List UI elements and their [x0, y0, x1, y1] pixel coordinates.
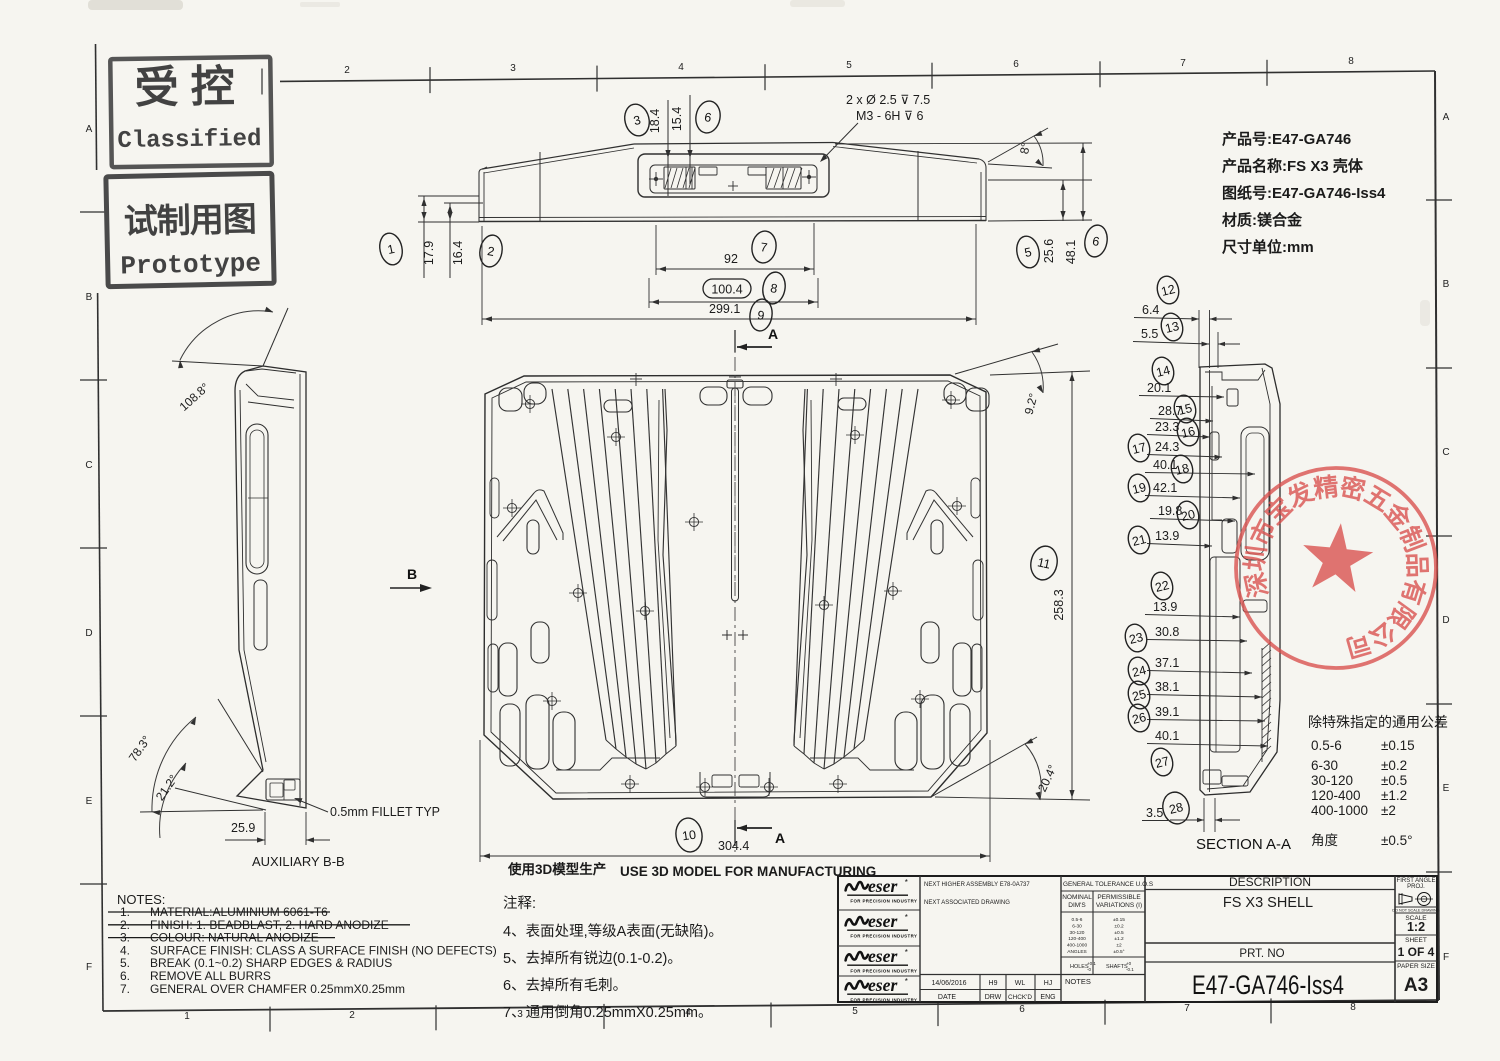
svg-text:304.4: 304.4: [718, 839, 749, 853]
svg-text:6.4: 6.4: [1142, 303, 1159, 317]
svg-text:9.2°: 9.2°: [1022, 392, 1041, 417]
svg-text:±2: ±2: [1381, 803, 1396, 818]
svg-text:258.3: 258.3: [1052, 589, 1066, 620]
svg-text:42.1: 42.1: [1153, 481, 1177, 495]
svg-text:8: 8: [769, 281, 778, 296]
svg-text:6-30: 6-30: [1072, 923, 1082, 929]
svg-text:2: 2: [486, 244, 495, 259]
svg-text:E: E: [1443, 783, 1450, 794]
svg-text:13.9: 13.9: [1153, 600, 1177, 614]
svg-text:30.8: 30.8: [1155, 625, 1179, 639]
svg-text:15.4: 15.4: [670, 107, 684, 131]
svg-text:E47-GA746-Iss4: E47-GA746-Iss4: [1192, 970, 1344, 1000]
svg-text:DO NOT SCALE DRAWING: DO NOT SCALE DRAWING: [1392, 909, 1440, 913]
svg-text:10: 10: [681, 828, 697, 844]
svg-text:受控: 受控: [134, 62, 247, 113]
svg-text:0.5-6: 0.5-6: [1311, 738, 1342, 753]
svg-text:±1.2: ±1.2: [1381, 788, 1407, 803]
svg-text:5、去掉所有锐边(0.1-0.2)。: 5、去掉所有锐边(0.1-0.2)。: [503, 950, 682, 967]
svg-text:深: 深: [1241, 570, 1274, 600]
svg-text:*: *: [905, 977, 908, 986]
svg-text:5: 5: [852, 1006, 858, 1017]
svg-text:14/06/2016: 14/06/2016: [931, 980, 966, 987]
svg-text:eser: eser: [868, 975, 897, 995]
svg-text:D: D: [1442, 615, 1449, 626]
svg-text:NOTES: NOTES: [1065, 977, 1091, 986]
svg-text:产品号:E47-GA746: 产品号:E47-GA746: [1222, 130, 1351, 148]
svg-text:Classified: Classified: [117, 126, 261, 155]
svg-text:AUXILIARY B-B: AUXILIARY B-B: [252, 854, 345, 869]
svg-text:37.1: 37.1: [1155, 656, 1179, 670]
svg-text:6: 6: [703, 110, 712, 125]
svg-text:FOR PRECISION INDUSTRY: FOR PRECISION INDUSTRY: [850, 898, 917, 903]
svg-text:2: 2: [344, 65, 350, 76]
svg-text:NOMINAL: NOMINAL: [1062, 894, 1092, 901]
svg-text:30-120: 30-120: [1070, 930, 1085, 936]
svg-text:精: 精: [1312, 473, 1340, 504]
svg-text:+0: +0: [1126, 961, 1132, 966]
svg-text:15: 15: [1177, 401, 1194, 418]
svg-text:14: 14: [1155, 363, 1172, 380]
svg-text:PAPER SIZE: PAPER SIZE: [1397, 963, 1435, 970]
svg-text:PERMISSIBLE: PERMISSIBLE: [1097, 894, 1141, 901]
svg-text:图纸号:E47-GA746-Iss4: 图纸号:E47-GA746-Iss4: [1222, 184, 1386, 202]
svg-text:±2: ±2: [1116, 943, 1122, 949]
svg-text:4: 4: [678, 62, 684, 73]
svg-text:±0.5°: ±0.5°: [1381, 833, 1413, 848]
svg-text:CHCK'D: CHCK'D: [1008, 994, 1032, 1001]
svg-text:9: 9: [757, 308, 766, 323]
svg-text:21: 21: [1131, 532, 1148, 549]
svg-text:7: 7: [760, 240, 769, 255]
svg-text:25: 25: [1131, 687, 1148, 704]
svg-text:±0.5: ±0.5: [1381, 773, 1407, 788]
svg-text:2 x Ø 2.5 ⊽ 7.5: 2 x Ø 2.5 ⊽ 7.5: [846, 93, 930, 107]
svg-text:3: 3: [510, 63, 516, 74]
svg-text:品: 品: [1402, 552, 1431, 578]
svg-text:19: 19: [1131, 480, 1148, 497]
svg-text:1:2: 1:2: [1407, 920, 1425, 934]
svg-text:5: 5: [1023, 245, 1033, 260]
svg-text:±0.5: ±0.5: [1114, 930, 1124, 936]
svg-text:A: A: [1443, 112, 1450, 123]
svg-text:角度: 角度: [1311, 833, 1338, 848]
svg-text:NEXT ASSOCIATED DRAWING: NEXT ASSOCIATED DRAWING: [924, 900, 1010, 906]
svg-text:E: E: [86, 796, 93, 807]
svg-text:108.8°: 108.8°: [177, 380, 212, 414]
svg-text:使用3D模型生产: 使用3D模型生产: [507, 861, 606, 877]
svg-text:7: 7: [1180, 58, 1186, 69]
svg-text:A: A: [86, 124, 93, 135]
svg-text:12: 12: [1160, 282, 1177, 299]
svg-text:ANGLES: ANGLES: [1067, 949, 1086, 955]
svg-text:B: B: [1443, 279, 1450, 290]
svg-text:H9: H9: [989, 980, 998, 987]
svg-text:*: *: [905, 948, 908, 957]
svg-text:Prototype: Prototype: [120, 249, 261, 282]
svg-text:25.6: 25.6: [1042, 239, 1056, 263]
svg-text:±0.5°: ±0.5°: [1113, 949, 1124, 955]
svg-text:7: 7: [1184, 1003, 1190, 1014]
svg-text:SHAFTS: SHAFTS: [1106, 964, 1128, 970]
svg-text:13: 13: [1164, 319, 1181, 336]
svg-text:6、去掉所有毛刺。: 6、去掉所有毛刺。: [503, 977, 627, 994]
svg-text:6-30: 6-30: [1311, 758, 1338, 773]
svg-text:4、表面处理,等级A表面(无缺陷)。: 4、表面处理,等级A表面(无缺陷)。: [503, 922, 723, 940]
svg-text:400-1000: 400-1000: [1067, 943, 1088, 949]
svg-text:-0: -0: [1087, 967, 1091, 972]
svg-text:除特殊指定的通用公差: 除特殊指定的通用公差: [1308, 714, 1448, 730]
svg-text:-0.1: -0.1: [1126, 967, 1134, 972]
svg-text:20: 20: [1180, 507, 1197, 524]
svg-text:18: 18: [1174, 461, 1191, 478]
svg-text:1 OF 4: 1 OF 4: [1398, 945, 1435, 959]
svg-text:HJ: HJ: [1044, 980, 1053, 987]
svg-text:ENG: ENG: [1040, 994, 1055, 1001]
svg-text:A3: A3: [1404, 975, 1428, 996]
svg-text:0.5-6: 0.5-6: [1072, 917, 1083, 923]
svg-text:24: 24: [1131, 663, 1148, 680]
svg-text:M3 - 6H ⊽ 6: M3 - 6H ⊽ 6: [856, 109, 924, 123]
svg-text:1: 1: [386, 242, 396, 257]
svg-text:5: 5: [846, 60, 852, 71]
svg-text:A: A: [775, 830, 785, 846]
svg-text:产品名称:FS X3 壳体: 产品名称:FS X3 壳体: [1222, 157, 1364, 175]
svg-text:±1.2: ±1.2: [1114, 936, 1124, 942]
svg-text:FOR PRECISION INDUSTRY: FOR PRECISION INDUSTRY: [850, 933, 917, 938]
svg-text:6: 6: [1091, 234, 1100, 249]
svg-text:3.5: 3.5: [1146, 806, 1163, 820]
svg-text:NEXT HIGHER ASSEMBLY E78-0A7: NEXT HIGHER ASSEMBLY E78-0A737: [924, 882, 1030, 888]
svg-text:eser: eser: [868, 876, 897, 896]
svg-text:B: B: [86, 292, 93, 303]
svg-text:试制用图: 试制用图: [123, 201, 256, 242]
svg-text:22: 22: [1154, 578, 1171, 595]
svg-text:材质:镁合金: 材质:镁合金: [1222, 211, 1303, 229]
svg-text:120-400: 120-400: [1311, 788, 1361, 803]
svg-text:23.3: 23.3: [1155, 420, 1179, 434]
svg-text:16: 16: [1180, 424, 1197, 441]
svg-text:注释:: 注释:: [503, 895, 536, 912]
svg-text:3: 3: [632, 113, 642, 128]
svg-text:40.1: 40.1: [1155, 729, 1179, 743]
svg-text:DESCRIPTION: DESCRIPTION: [1229, 875, 1311, 889]
svg-text:VARIATIONS (I): VARIATIONS (I): [1096, 902, 1142, 909]
svg-text:DATE: DATE: [938, 994, 956, 1001]
svg-text:2: 2: [349, 1010, 355, 1021]
svg-text:WL: WL: [1015, 980, 1026, 987]
svg-text:28: 28: [1168, 800, 1185, 817]
svg-text:SHEET: SHEET: [1405, 937, 1427, 944]
svg-text:17: 17: [1131, 440, 1148, 457]
svg-text:FOR PRECISION INDUSTRY: FOR PRECISION INDUSTRY: [850, 968, 917, 973]
svg-text:39.1: 39.1: [1155, 705, 1179, 719]
svg-text:400-1000: 400-1000: [1311, 803, 1368, 818]
svg-text:SECTION A-A: SECTION A-A: [1196, 836, 1291, 853]
svg-text:5.5: 5.5: [1141, 327, 1158, 341]
svg-text:16.4: 16.4: [451, 241, 465, 265]
svg-text:30-120: 30-120: [1311, 773, 1353, 788]
svg-text:±0.2: ±0.2: [1381, 758, 1407, 773]
svg-text:92: 92: [724, 252, 738, 266]
svg-text:17.9: 17.9: [422, 241, 436, 265]
svg-text:20.4°: 20.4°: [1035, 762, 1060, 794]
svg-text:120-400: 120-400: [1068, 936, 1086, 942]
svg-text:D: D: [85, 628, 92, 639]
svg-text:FOR PRECISION INDUSTRY: FOR PRECISION INDUSTRY: [850, 997, 917, 1002]
svg-text:FS X3 SHELL: FS X3 SHELL: [1223, 895, 1313, 911]
svg-text:23: 23: [1128, 630, 1145, 647]
svg-text:13.9: 13.9: [1155, 529, 1179, 543]
svg-text:PROJ.: PROJ.: [1407, 884, 1425, 890]
svg-text:6: 6: [1019, 1004, 1025, 1015]
svg-text:0.5mm FILLET TYP: 0.5mm FILLET TYP: [330, 805, 440, 819]
svg-text:A: A: [768, 326, 778, 342]
svg-text:GENERAL TOLERANCE U.O.S: GENERAL TOLERANCE U.O.S: [1063, 881, 1153, 888]
svg-text:±0.15: ±0.15: [1381, 738, 1415, 753]
svg-text:26: 26: [1131, 710, 1148, 727]
svg-text:*: *: [905, 913, 908, 922]
svg-text:F: F: [86, 962, 92, 973]
svg-text:18.4: 18.4: [648, 109, 662, 133]
svg-text:100.4: 100.4: [711, 283, 742, 297]
svg-text:6: 6: [1013, 59, 1019, 70]
svg-text:7.: 7.: [120, 982, 130, 996]
svg-text:eser: eser: [868, 911, 897, 931]
svg-text:DIM'S: DIM'S: [1068, 902, 1086, 909]
svg-text:1: 1: [184, 1011, 190, 1022]
svg-text:+0.1: +0.1: [1087, 961, 1096, 966]
svg-text:38.1: 38.1: [1155, 680, 1179, 694]
svg-text:F: F: [1443, 952, 1449, 963]
svg-text:7、通用倒角0.25mmX0.25mm。: 7、通用倒角0.25mmX0.25mm。: [503, 1004, 713, 1021]
svg-text:GENERAL OVER CHAMFER 0.25mmX0.: GENERAL OVER CHAMFER 0.25mmX0.25mm: [150, 982, 405, 996]
svg-text:±0.15: ±0.15: [1113, 917, 1125, 923]
svg-text:11: 11: [1036, 555, 1052, 571]
svg-text:299.1: 299.1: [709, 302, 740, 316]
svg-text:25.9: 25.9: [231, 821, 255, 835]
svg-text:eser: eser: [868, 946, 897, 966]
svg-text:8: 8: [1350, 1002, 1356, 1013]
svg-text:尺寸单位:mm: 尺寸单位:mm: [1222, 238, 1314, 256]
svg-text:27: 27: [1154, 754, 1171, 771]
svg-text:C: C: [1442, 447, 1449, 458]
svg-text:PRT. NO: PRT. NO: [1239, 948, 1284, 960]
svg-text:48.1: 48.1: [1064, 240, 1078, 264]
svg-text:B: B: [407, 566, 417, 582]
svg-text:24.3: 24.3: [1155, 440, 1179, 454]
svg-text:DRW: DRW: [985, 994, 1002, 1001]
svg-text:21.2°: 21.2°: [153, 772, 181, 803]
svg-text:±0.2: ±0.2: [1114, 923, 1124, 929]
svg-text:8: 8: [1348, 56, 1354, 67]
svg-text:C: C: [85, 460, 92, 471]
svg-text:78.3°: 78.3°: [126, 733, 154, 764]
svg-text:*: *: [905, 878, 908, 887]
